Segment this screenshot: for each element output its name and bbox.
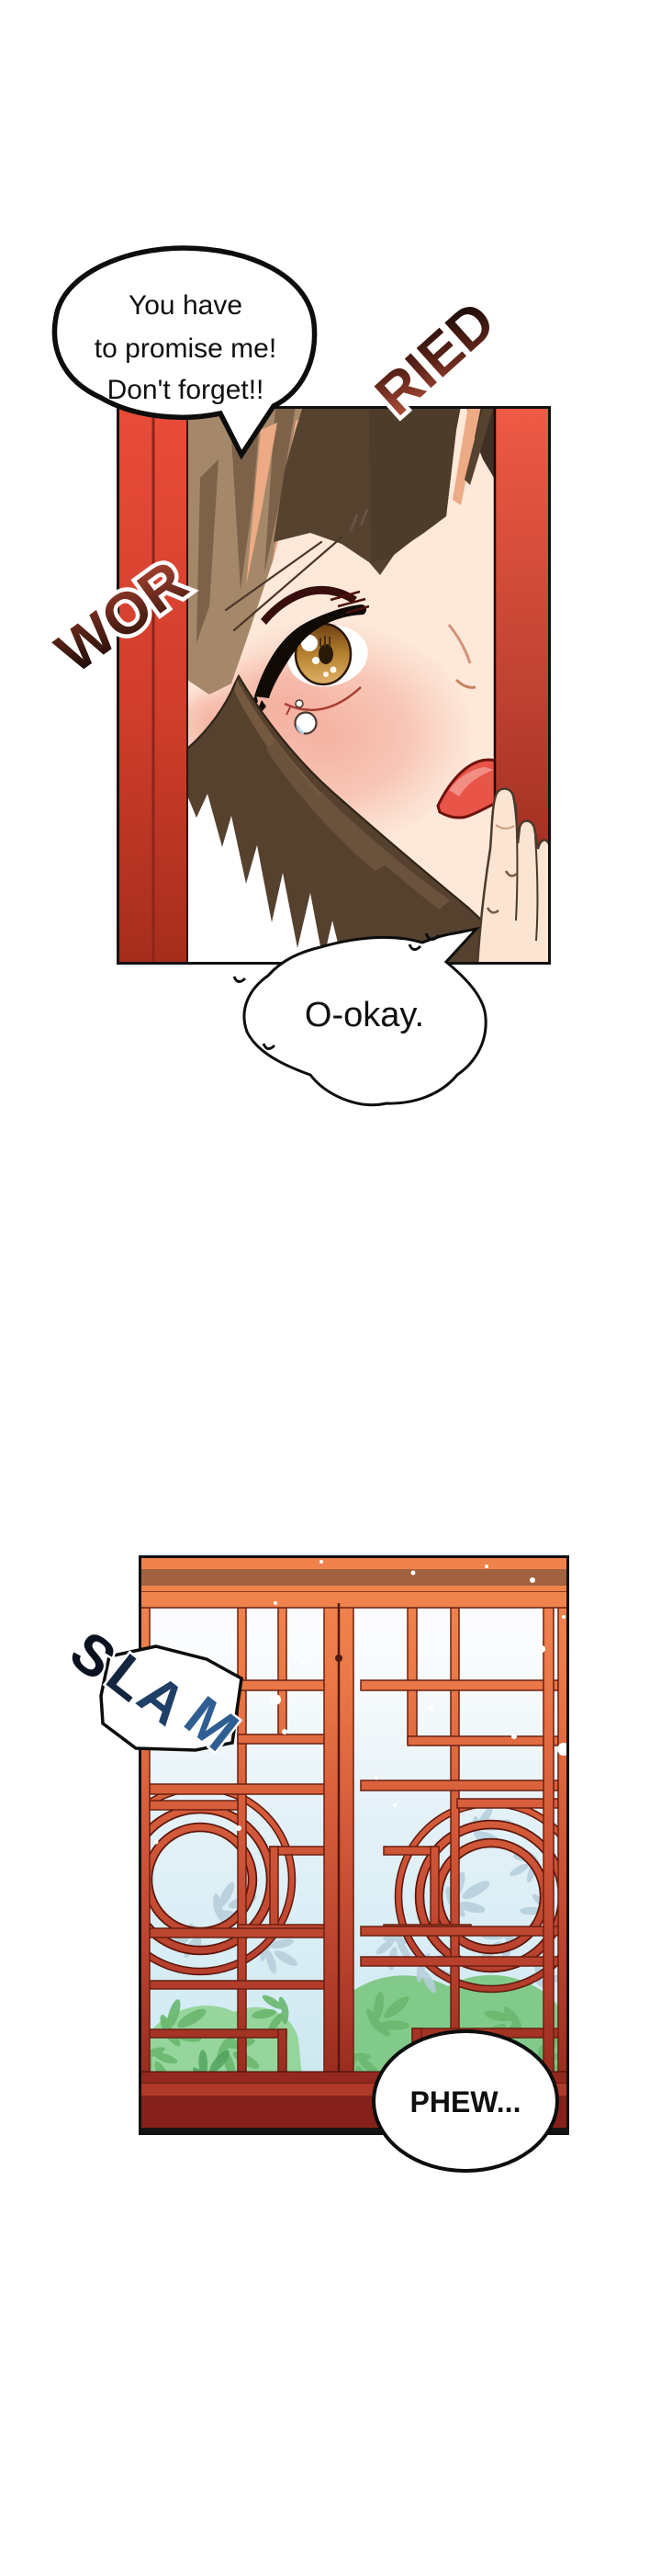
- svg-text:to promise me!: to promise me!: [95, 333, 276, 364]
- svg-text:PHEW...: PHEW...: [410, 2085, 521, 2118]
- svg-text:You have: You have: [129, 290, 242, 321]
- svg-text:O-okay.: O-okay.: [305, 996, 424, 1034]
- svg-text:Don't forget!!: Don't forget!!: [107, 375, 264, 405]
